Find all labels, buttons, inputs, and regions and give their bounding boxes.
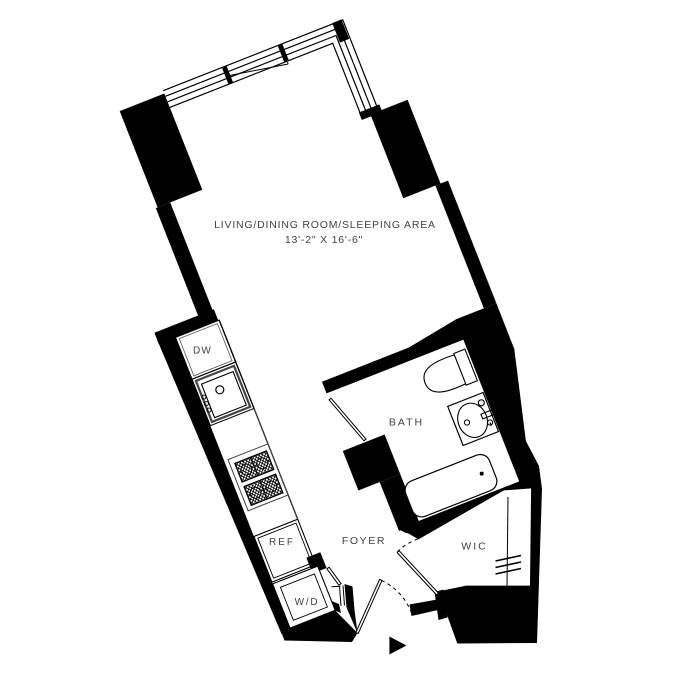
svg-text:DW: DW (193, 346, 212, 357)
svg-text:W/D: W/D (295, 597, 320, 608)
svg-text:FOYER: FOYER (342, 535, 386, 547)
svg-text:REF: REF (269, 537, 295, 548)
svg-text:BATH: BATH (389, 417, 424, 429)
svg-text:WIC: WIC (461, 541, 487, 553)
svg-text:13'-2" X 16'-6": 13'-2" X 16'-6" (285, 234, 363, 246)
svg-text:LIVING/DINING ROOM/SLEEPING AR: LIVING/DINING ROOM/SLEEPING AREA (214, 219, 436, 231)
